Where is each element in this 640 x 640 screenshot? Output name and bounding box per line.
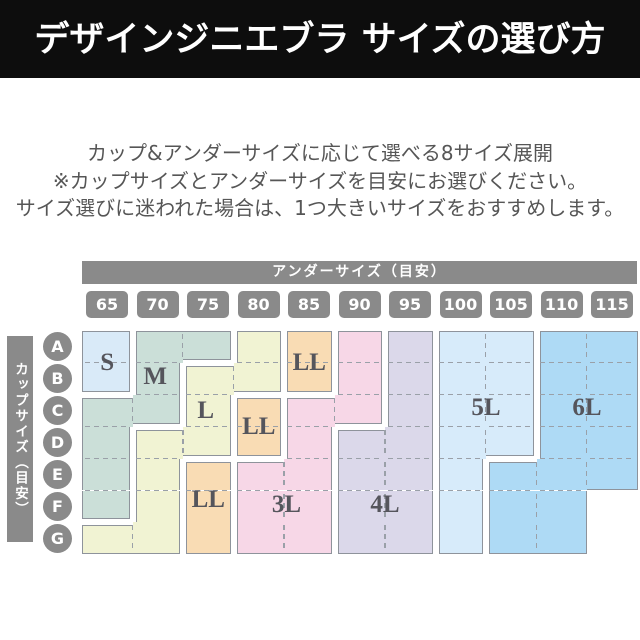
size-cell-L-70D <box>136 430 184 459</box>
size-cell-6L-110F <box>537 491 588 523</box>
cell-divider <box>233 366 235 392</box>
size-cell-LL-75G <box>186 522 231 554</box>
cell-divider <box>283 525 285 551</box>
under-size-box-115: 115 <box>591 291 633 318</box>
size-cell-4L-95G <box>385 522 433 554</box>
under-size-box-65: 65 <box>86 291 128 318</box>
under-size-box-90: 90 <box>339 291 381 318</box>
size-cell-M-65C <box>82 398 133 427</box>
size-cell-L-65G <box>82 525 133 554</box>
cell-divider <box>283 462 285 488</box>
page-title: デザインジニエブラ サイズの選び方 <box>0 0 640 78</box>
size-cell-4L-90E <box>338 459 386 491</box>
size-cell-5L-100B <box>439 363 487 395</box>
size-cell-M-65F <box>82 491 130 520</box>
cup-size-header-bar: カップサイズ（目安） <box>7 336 33 542</box>
size-region-label-M: M <box>143 363 167 391</box>
size-region-label-6L: 6L <box>572 394 601 422</box>
cup-size-circle-B: B <box>43 364 72 393</box>
size-cell-L-80B <box>234 363 282 392</box>
size-region-label-L: L <box>197 397 214 425</box>
size-cell-6L-110A <box>540 331 588 363</box>
size-cell-3L-90C <box>335 395 383 424</box>
under-size-box-80: 80 <box>238 291 280 318</box>
cup-size-circle-D: D <box>43 428 72 457</box>
size-cell-L-70E <box>136 459 181 491</box>
cup-size-circle-C: C <box>43 396 72 425</box>
size-cell-5L-105D <box>486 427 534 456</box>
cell-divider <box>536 525 538 551</box>
size-cell-6L-115B <box>587 363 638 395</box>
under-size-box-85: 85 <box>288 291 330 318</box>
under-size-box-75: 75 <box>187 291 229 318</box>
size-guide-page: デザインジニエブラ サイズの選び方 カップ&アンダーサイズに応じて選べる8サイズ… <box>0 0 640 640</box>
under-size-box-70: 70 <box>137 291 179 318</box>
cell-divider <box>384 525 386 551</box>
cell-divider <box>334 398 336 424</box>
size-cell-M-70C <box>133 395 181 424</box>
cup-size-circle-E: E <box>43 460 72 489</box>
title-bar: デザインジニエブラ サイズの選び方 <box>0 0 640 78</box>
cell-divider <box>182 430 184 456</box>
size-cell-4L-90G <box>338 522 386 554</box>
intro-line-1: カップ&アンダーサイズに応じて選べる8サイズ展開 <box>0 140 640 168</box>
size-cell-L-80A <box>237 331 282 363</box>
size-cell-3L-85D <box>287 427 332 459</box>
intro-line-2: ※カップサイズとアンダーサイズを目安にお選びください。 <box>0 168 640 196</box>
size-cell-5L-100F <box>439 491 484 523</box>
size-cell-6L-115D <box>587 427 638 459</box>
cell-divider <box>536 494 538 520</box>
size-cell-3L-80G <box>237 522 285 554</box>
size-cell-3L-85E <box>284 459 332 491</box>
size-cell-6L-115A <box>587 331 638 363</box>
size-cell-L-75B <box>186 366 234 395</box>
cell-divider <box>384 430 386 456</box>
size-cell-L-75D <box>183 427 231 456</box>
size-cell-3L-80E <box>237 462 285 491</box>
size-cell-4L-95A <box>388 331 433 363</box>
cell-divider <box>384 462 386 488</box>
intro-text: カップ&アンダーサイズに応じて選べる8サイズ展開 ※カップサイズとアンダーサイズ… <box>0 140 640 223</box>
cell-divider <box>132 525 134 551</box>
size-cell-6L-115E <box>587 459 638 491</box>
size-cell-M-65E <box>82 459 130 491</box>
size-cell-3L-90B <box>338 363 383 395</box>
size-cell-4L-95D <box>385 427 433 459</box>
size-cell-5L-105B <box>486 363 534 395</box>
under-size-header-bar: アンダーサイズ（目安） <box>82 261 637 284</box>
size-cell-5L-100A <box>439 331 487 363</box>
size-cell-6L-105G <box>489 522 537 554</box>
under-size-box-110: 110 <box>541 291 583 318</box>
intro-line-3: サイズ選びに迷われた場合は、1つ大きいサイズをおすすめします。 <box>0 195 640 223</box>
under-size-header-label: アンダーサイズ（目安） <box>82 261 637 284</box>
cup-size-circle-G: G <box>43 524 72 553</box>
size-cell-5L-100G <box>439 522 484 554</box>
cup-size-circle-F: F <box>43 492 72 521</box>
cell-divider <box>536 462 538 488</box>
size-region-label-S: S <box>100 349 114 377</box>
size-region-label-LL: LL <box>293 349 326 377</box>
size-cell-4L-95C <box>388 395 433 427</box>
size-cell-3L-85C <box>287 398 335 427</box>
size-cell-6L-110G <box>537 522 588 554</box>
size-cell-4L-95E <box>385 459 433 491</box>
size-region-label-4L: 4L <box>370 491 399 519</box>
size-cell-M-70A <box>136 331 184 363</box>
size-cell-3L-90A <box>338 331 383 363</box>
size-cell-4L-90D <box>338 430 386 459</box>
size-cell-6L-110B <box>540 363 588 395</box>
size-cell-4L-95B <box>388 363 433 395</box>
cup-size-header-label: カップサイズ（目安） <box>7 336 33 542</box>
size-region-label-5L: 5L <box>471 394 500 422</box>
size-cell-L-70G <box>133 522 181 554</box>
size-region-label-3L: 3L <box>272 491 301 519</box>
size-cell-6L-110D <box>540 427 588 459</box>
under-size-box-100: 100 <box>440 291 482 318</box>
under-size-box-105: 105 <box>490 291 532 318</box>
under-size-box-95: 95 <box>389 291 431 318</box>
size-cell-M-75A <box>183 331 231 360</box>
size-region-label-LL: LL <box>192 486 225 514</box>
size-region-label-LL: LL <box>242 413 275 441</box>
size-cell-3L-85G <box>284 522 332 554</box>
size-cell-6L-105E <box>489 462 537 491</box>
size-cell-L-70F <box>136 491 181 523</box>
size-cell-6L-110E <box>537 459 588 491</box>
size-cell-5L-100E <box>439 459 484 491</box>
size-cell-5L-100D <box>439 427 487 459</box>
size-cell-M-65D <box>82 427 130 459</box>
size-cell-6L-105F <box>489 491 537 523</box>
size-cell-5L-105A <box>486 331 534 363</box>
cup-size-circle-A: A <box>43 332 72 361</box>
